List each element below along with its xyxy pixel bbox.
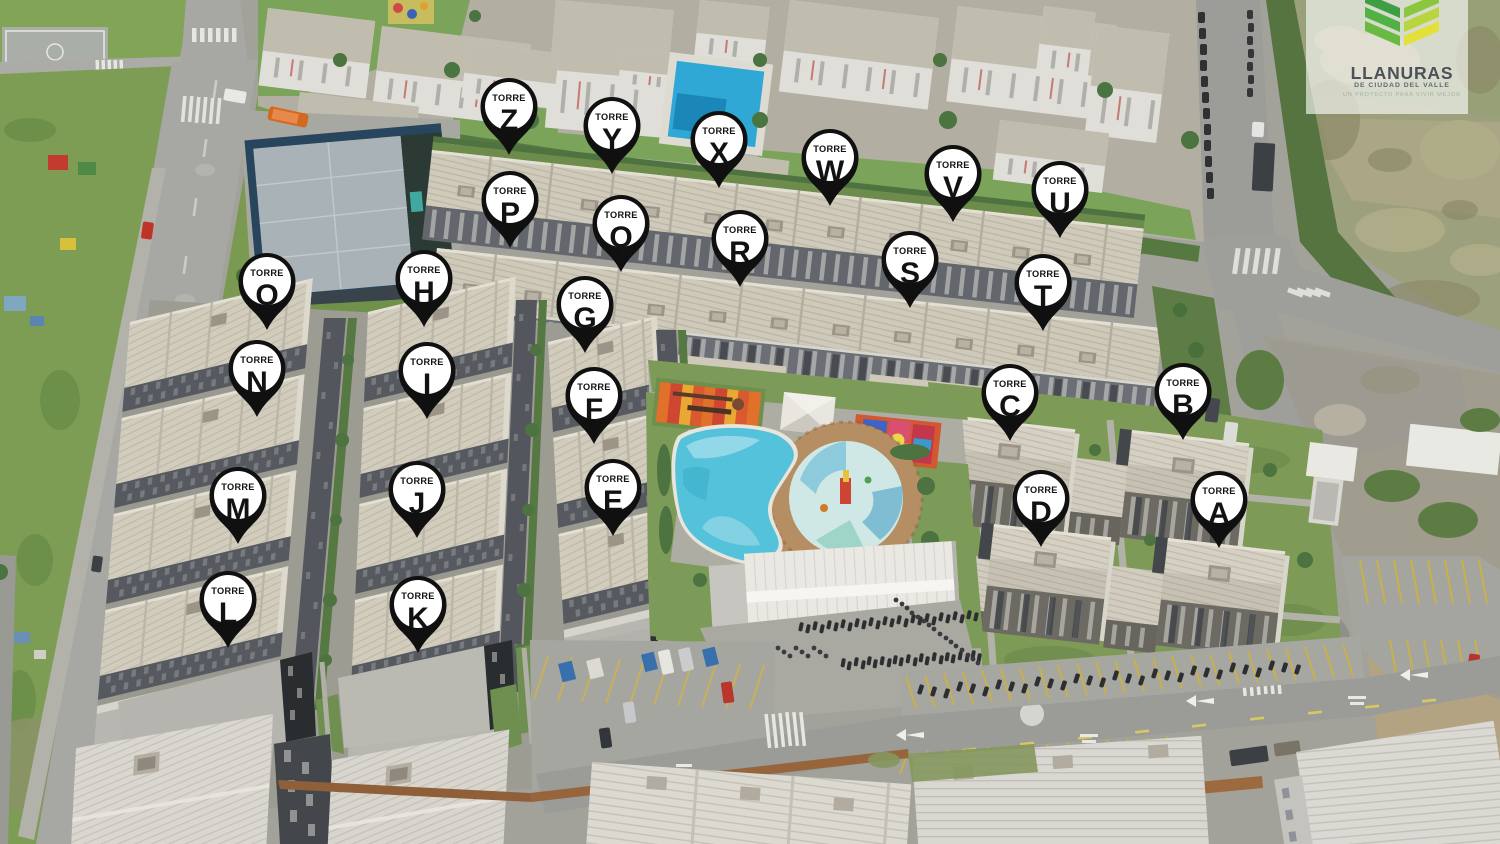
svg-text:TORRE: TORRE [401,591,435,601]
svg-text:M: M [226,493,251,526]
svg-text:TORRE: TORRE [813,144,847,154]
svg-text:W: W [816,155,845,188]
svg-text:S: S [900,257,920,290]
svg-text:G: G [573,302,596,335]
svg-text:TORRE: TORRE [1026,269,1060,279]
svg-text:TORRE: TORRE [993,379,1027,389]
svg-text:P: P [500,197,520,230]
svg-text:U: U [1049,187,1071,220]
svg-text:LLANURAS: LLANURAS [1351,63,1454,83]
svg-text:Y: Y [602,123,622,156]
svg-text:V: V [943,171,963,204]
svg-text:TORRE: TORRE [1024,485,1058,495]
svg-text:F: F [585,393,603,426]
svg-text:O: O [255,279,278,312]
svg-text:TORRE: TORRE [893,246,927,256]
svg-text:TORRE: TORRE [410,357,444,367]
svg-text:TORRE: TORRE [240,355,274,365]
svg-text:TORRE: TORRE [400,476,434,486]
svg-text:TORRE: TORRE [250,268,284,278]
svg-text:TORRE: TORRE [211,586,245,596]
svg-text:TORRE: TORRE [493,186,527,196]
svg-text:DE CIUDAD DEL VALLE: DE CIUDAD DEL VALLE [1354,82,1450,89]
svg-text:I: I [423,368,431,401]
svg-text:B: B [1172,389,1194,422]
svg-text:UN PROYECTO PARA VIVIR MEJOR: UN PROYECTO PARA VIVIR MEJOR [1343,92,1461,98]
svg-text:TORRE: TORRE [492,93,526,103]
svg-text:T: T [1034,280,1052,313]
svg-text:A: A [1208,497,1230,530]
svg-text:TORRE: TORRE [577,382,611,392]
svg-text:C: C [999,390,1021,423]
svg-text:J: J [409,487,426,520]
svg-text:TORRE: TORRE [1043,176,1077,186]
svg-text:Q: Q [609,221,632,254]
svg-text:X: X [709,137,729,170]
svg-text:TORRE: TORRE [702,126,736,136]
svg-text:TORRE: TORRE [221,482,255,492]
svg-text:TORRE: TORRE [936,160,970,170]
svg-text:L: L [219,597,237,630]
svg-text:TORRE: TORRE [604,210,638,220]
svg-text:D: D [1030,496,1052,529]
svg-text:TORRE: TORRE [723,225,757,235]
svg-text:K: K [407,602,429,635]
svg-text:TORRE: TORRE [1166,378,1200,388]
svg-text:R: R [729,236,751,269]
svg-text:TORRE: TORRE [596,474,630,484]
svg-text:TORRE: TORRE [595,112,629,122]
svg-text:TORRE: TORRE [568,291,602,301]
svg-text:H: H [413,276,435,309]
svg-text:Z: Z [500,104,518,137]
svg-text:TORRE: TORRE [1202,486,1236,496]
svg-text:TORRE: TORRE [407,265,441,275]
svg-text:N: N [246,366,268,399]
svg-text:E: E [603,485,623,518]
